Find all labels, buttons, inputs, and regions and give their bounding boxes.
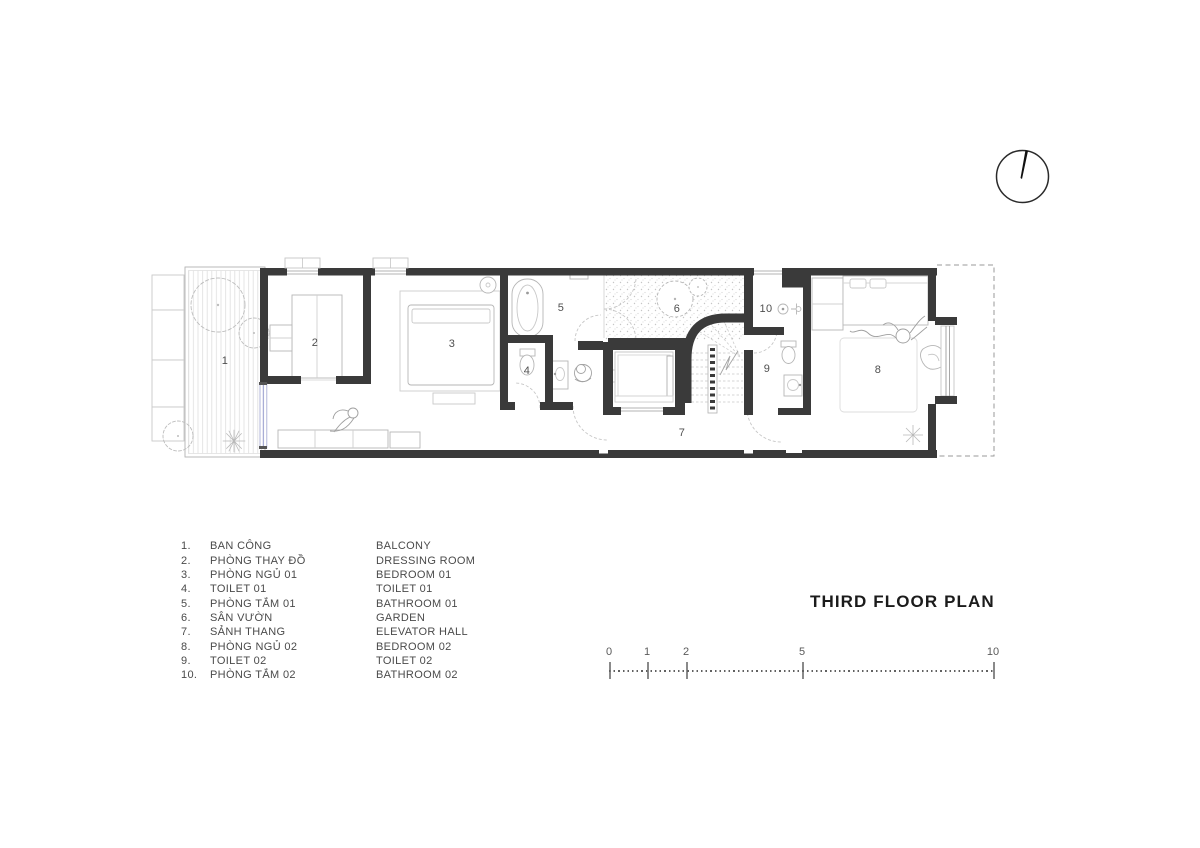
room-label-3: 3 (449, 338, 456, 350)
legend-row: 9.TOILET 02TOILET 02 (181, 654, 475, 668)
legend-number: 6. (181, 612, 210, 624)
elevator (610, 352, 673, 411)
legend-row: 8.PHÒNG NGỦ 02BEDROOM 02 (181, 639, 475, 653)
legend-name-en: ELEVATOR HALL (376, 626, 468, 638)
legend-number: 7. (181, 626, 210, 638)
legend-number: 8. (181, 641, 210, 653)
north-indicator-icon (993, 147, 1053, 207)
legend: 1.BAN CÔNGBALCONY 2.PHÒNG THAY ĐỒDRESSIN… (181, 539, 475, 682)
planter-box (152, 310, 184, 360)
legend-name-en: DRESSING ROOM (376, 555, 475, 567)
legend-name-vi: BAN CÔNG (210, 540, 376, 552)
legend-name-en: BEDROOM 02 (376, 641, 452, 653)
scale-bar: 0 1 2 5 10 (605, 646, 1005, 682)
bathtub (512, 275, 588, 337)
legend-name-vi: TOILET 01 (210, 583, 376, 595)
bed (843, 276, 928, 325)
bathroom-door-arc (575, 315, 601, 341)
shrub-icon (223, 430, 245, 452)
scale-label-2: 2 (683, 646, 689, 658)
toilet (781, 341, 796, 364)
sliding-door (259, 382, 267, 449)
floor-plan-drawing: 1 2 3 4 5 6 7 8 9 10 (150, 253, 1010, 473)
room-label-2: 2 (312, 337, 319, 349)
legend-name-en: BATHROOM 01 (376, 598, 458, 610)
scale-label-0: 0 (606, 646, 612, 658)
floor-plan-sheet: 1 2 3 4 5 6 7 8 9 10 1.BAN CÔNGBALCONY 2… (0, 0, 1200, 848)
legend-name-en: TOILET 02 (376, 655, 433, 667)
shower-icon (778, 304, 801, 315)
bay-window-glass (941, 326, 954, 396)
balcony (152, 267, 269, 457)
shrub-icon (903, 425, 923, 445)
room-label-4: 4 (524, 365, 531, 377)
legend-name-vi: PHÒNG NGỦ 02 (210, 641, 376, 653)
legend-name-en: BEDROOM 01 (376, 569, 452, 581)
planter-box (152, 360, 184, 407)
planter-box (152, 407, 184, 441)
hall-door-arc (573, 406, 607, 440)
legend-number: 5. (181, 598, 210, 610)
legend-name-vi: PHÒNG NGỦ 01 (210, 569, 376, 581)
scale-label-10: 10 (987, 646, 999, 658)
page-title: THIRD FLOOR PLAN (810, 592, 1070, 612)
legend-name-vi: PHÒNG THAY ĐỒ (210, 555, 376, 567)
elevator-door (617, 408, 671, 411)
legend-row: 7.SẢNH THANGELEVATOR HALL (181, 625, 475, 639)
legend-row: 3.PHÒNG NGỦ 01BEDROOM 01 (181, 568, 475, 582)
legend-number: 10. (181, 669, 210, 681)
legend-name-en: TOILET 01 (376, 583, 433, 595)
legend-number: 2. (181, 555, 210, 567)
scale-label-5: 5 (799, 646, 805, 658)
toilet-door-arc (515, 383, 540, 408)
legend-row: 6.SÂN VƯỜNGARDEN (181, 611, 475, 625)
sofa (278, 430, 420, 448)
legend-number: 1. (181, 540, 210, 552)
legend-number: 9. (181, 655, 210, 667)
room-label-10: 10 (759, 303, 772, 315)
legend-name-en: BATHROOM 02 (376, 669, 458, 681)
legend-row: 5.PHÒNG TẮM 01BATHROOM 01 (181, 596, 475, 610)
scale-dotted-line (609, 670, 993, 672)
room-label-7: 7 (679, 427, 686, 439)
legend-name-en: GARDEN (376, 612, 425, 624)
room-label-8: 8 (875, 364, 882, 376)
legend-number: 3. (181, 569, 210, 581)
scale-tick (993, 662, 995, 679)
closet (812, 278, 843, 330)
legend-row: 10.PHÒNG TẮM 02BATHROOM 02 (181, 668, 475, 682)
vanity-sink (552, 361, 568, 389)
room-label-6: 6 (674, 303, 681, 315)
legend-name-vi: TOILET 02 (210, 655, 376, 667)
legend-name-en: BALCONY (376, 540, 431, 552)
wardrobe (270, 295, 342, 378)
shower-shelf (570, 275, 588, 279)
person-seated (575, 365, 592, 382)
legend-row: 4.TOILET 01TOILET 01 (181, 582, 475, 596)
legend-row: 1.BAN CÔNGBALCONY (181, 539, 475, 553)
legend-number: 4. (181, 583, 210, 595)
legend-name-vi: SÂN VƯỜN (210, 612, 376, 624)
person-figure (330, 408, 358, 432)
sink (784, 375, 802, 396)
room-label-1: 1 (222, 355, 229, 367)
legend-name-vi: PHÒNG TẮM 01 (210, 598, 376, 610)
scale-label-1: 1 (644, 646, 650, 658)
room-label-9: 9 (764, 363, 771, 375)
legend-name-vi: SẢNH THANG (210, 626, 376, 638)
break-line (720, 351, 738, 375)
legend-row: 2.PHÒNG THAY ĐỒDRESSING ROOM (181, 553, 475, 567)
planter-box (152, 275, 184, 310)
legend-name-vi: PHÒNG TẮM 02 (210, 669, 376, 681)
room-label-5: 5 (558, 302, 565, 314)
